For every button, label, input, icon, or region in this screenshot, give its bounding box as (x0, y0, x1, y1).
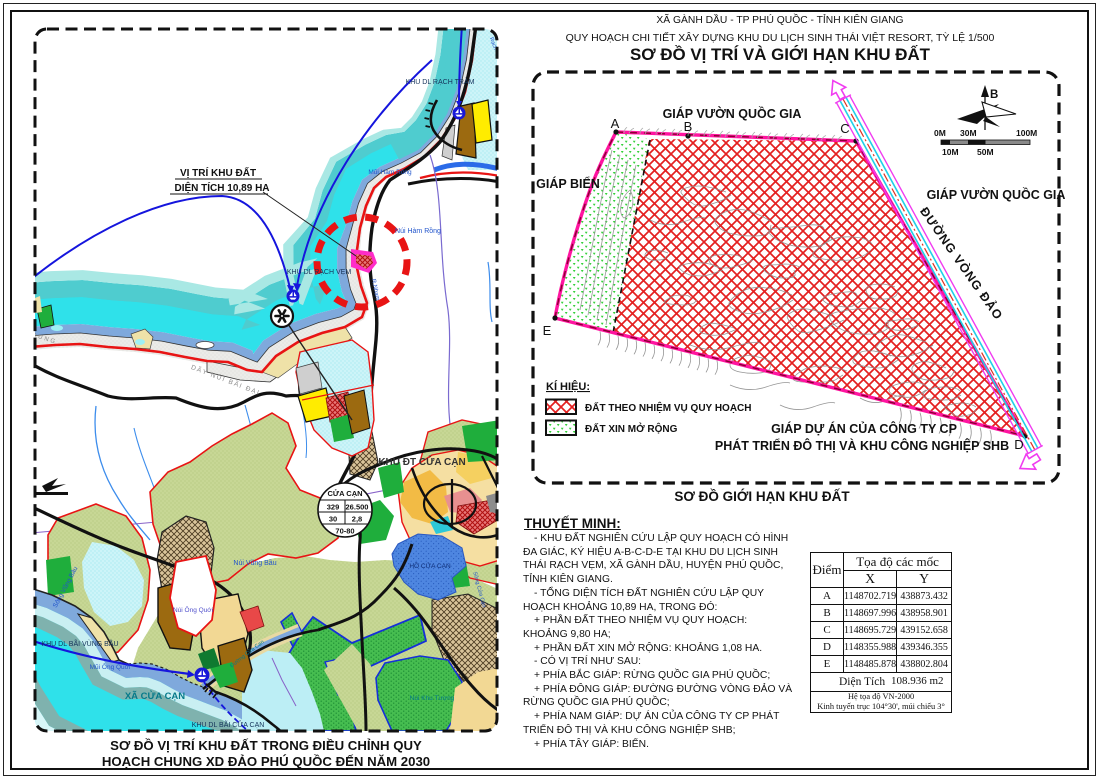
svg-text:0M: 0M (934, 128, 946, 138)
svg-text:VỊ TRÍ KHU ĐẤT: VỊ TRÍ KHU ĐẤT (180, 166, 256, 179)
svg-text:B: B (990, 89, 998, 101)
svg-text:C: C (840, 121, 849, 136)
svg-text:26.500: 26.500 (346, 503, 369, 512)
svg-text:CỬA CẠN: CỬA CẠN (327, 489, 362, 498)
svg-text:50M: 50M (977, 147, 994, 157)
svg-text:Núi Khu Tượng: Núi Khu Tượng (410, 695, 455, 702)
svg-text:E: E (543, 323, 552, 338)
svg-text:GIÁP DỰ ÁN CỦA CÔNG TY CP: GIÁP DỰ ÁN CỦA CÔNG TY CP (771, 421, 957, 436)
svg-text:Núi Hàm Rồng: Núi Hàm Rồng (395, 226, 441, 235)
svg-text:Mũi Hàm Rồng: Mũi Hàm Rồng (368, 167, 412, 176)
svg-text:KHU DL RẠCH TRÀM: KHU DL RẠCH TRÀM (406, 77, 475, 86)
svg-text:KÍ HIỆU:: KÍ HIỆU: (546, 380, 590, 393)
svg-text:30: 30 (329, 515, 337, 524)
svg-text:KHU ĐT CỬA CẠN: KHU ĐT CỬA CẠN (378, 455, 465, 468)
svg-text:30M: 30M (960, 128, 977, 138)
svg-text:Núi Ông Quới: Núi Ông Quới (173, 605, 213, 614)
svg-text:Mũi Ông Quới: Mũi Ông Quới (90, 662, 131, 671)
svg-text:XÃ CỬA CẠN: XÃ CỬA CẠN (125, 690, 185, 702)
svg-text:70-80: 70-80 (335, 527, 354, 536)
svg-text:A: A (611, 116, 620, 131)
svg-text:B: B (684, 119, 693, 134)
svg-text:329: 329 (327, 503, 340, 512)
svg-text:2,8: 2,8 (352, 515, 362, 524)
svg-text:ĐẤT THEO NHIỆM VỤ QUY HOẠCH: ĐẤT THEO NHIỆM VỤ QUY HOẠCH (585, 401, 752, 414)
svg-text:PHÁT TRIỂN ĐÔ THỊ VÀ KHU CÔNG: PHÁT TRIỂN ĐÔ THỊ VÀ KHU CÔNG NGHIỆP SHB (715, 438, 1009, 453)
svg-text:KHU DL RẠCH VẸM: KHU DL RẠCH VẸM (287, 269, 351, 276)
svg-text:100M: 100M (1016, 128, 1037, 138)
svg-text:D: D (1014, 437, 1023, 452)
svg-text:GIÁP VƯỜN QUỒC GIA: GIÁP VƯỜN QUỒC GIA (927, 187, 1066, 202)
svg-text:DIỆN TÍCH 10,89 HA: DIỆN TÍCH 10,89 HA (174, 181, 269, 194)
svg-text:10M: 10M (942, 147, 959, 157)
svg-text:ĐẤT XIN MỞ RỘNG: ĐẤT XIN MỞ RỘNG (585, 422, 678, 435)
svg-text:KHU DL BÃI CỬA CẠN: KHU DL BÃI CỬA CẠN (192, 720, 265, 729)
svg-text:Núi Vũng Bầu: Núi Vũng Bầu (233, 558, 276, 567)
svg-text:GIÁP BIỂN: GIÁP BIỂN (536, 176, 600, 191)
